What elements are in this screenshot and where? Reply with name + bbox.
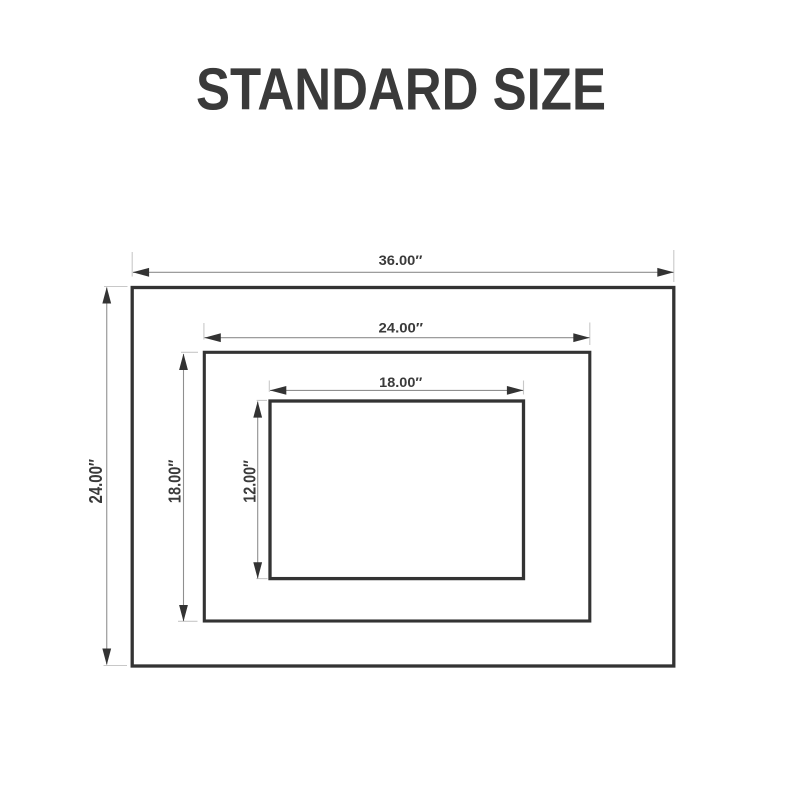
svg-text:36.00″: 36.00″: [379, 252, 423, 268]
svg-text:12.00″: 12.00″: [239, 460, 259, 503]
svg-text:24.00″: 24.00″: [86, 459, 106, 504]
svg-text:24.00″: 24.00″: [379, 320, 424, 336]
svg-text:18.00″: 18.00″: [379, 374, 422, 390]
svg-text:STANDARD SIZE: STANDARD SIZE: [196, 56, 606, 122]
svg-text:18.00″: 18.00″: [165, 460, 185, 503]
